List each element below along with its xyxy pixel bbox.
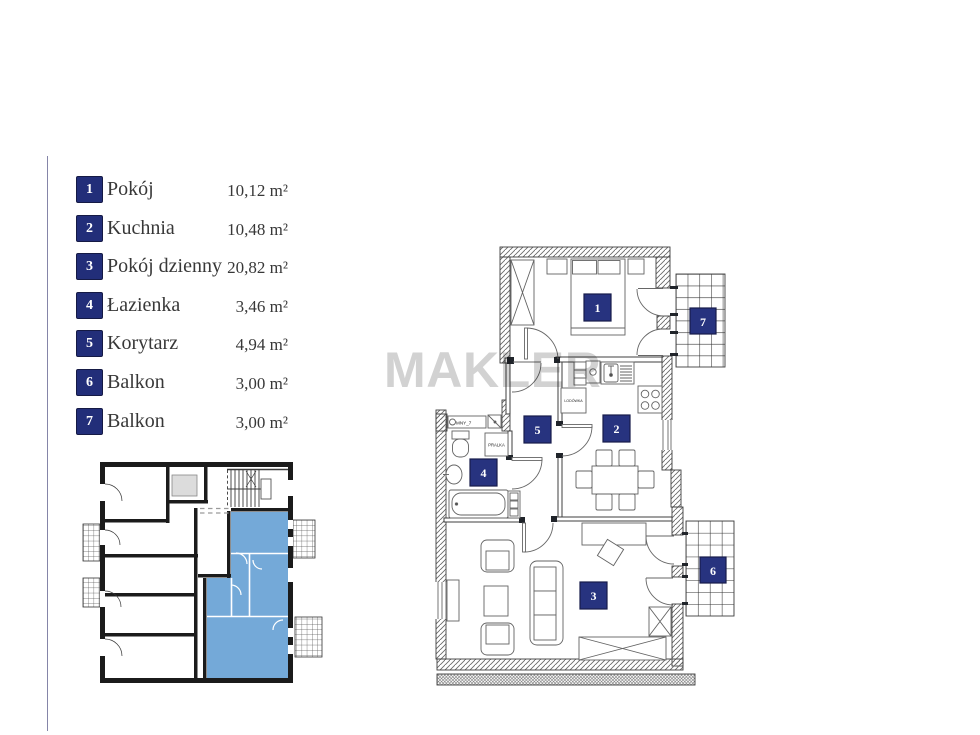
svg-text:1: 1 xyxy=(595,301,601,315)
svg-text:2: 2 xyxy=(614,422,620,436)
svg-text:6: 6 xyxy=(710,564,716,578)
svg-text:PRALKA: PRALKA xyxy=(488,443,505,448)
svg-text:3: 3 xyxy=(591,589,597,603)
svg-text:LODÓWKA: LODÓWKA xyxy=(564,398,583,403)
svg-text:5: 5 xyxy=(535,423,541,437)
svg-text:7: 7 xyxy=(700,315,706,329)
svg-text:MNY_7: MNY_7 xyxy=(456,421,472,426)
svg-text:4: 4 xyxy=(481,466,487,480)
